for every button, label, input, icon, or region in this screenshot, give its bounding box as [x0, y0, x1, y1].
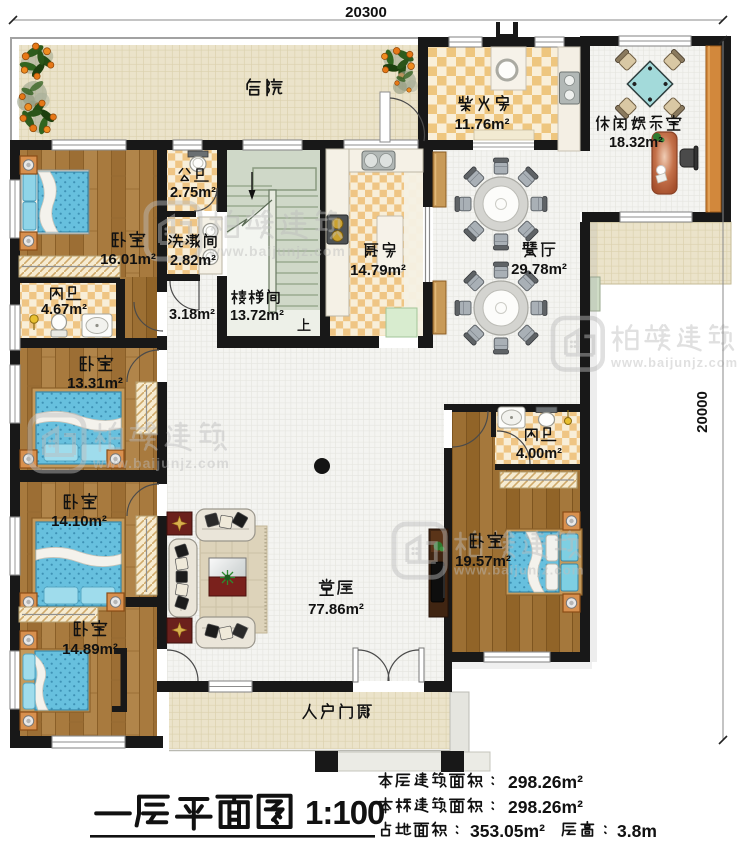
svg-text:4.67m²: 4.67m²: [41, 302, 87, 318]
svg-text:19.57m²: 19.57m²: [455, 553, 511, 570]
svg-text:18.32m²: 18.32m²: [609, 135, 663, 151]
svg-text:2.75m²: 2.75m²: [170, 185, 216, 201]
svg-text:77.86m²: 77.86m²: [308, 601, 364, 618]
svg-text:353.05m²: 353.05m²: [470, 821, 545, 841]
svg-text:3.18m²: 3.18m²: [169, 307, 215, 323]
svg-text:298.26m²: 298.26m²: [508, 797, 583, 817]
svg-text:16.01m²: 16.01m²: [100, 251, 156, 268]
svg-text:www.baijunjz.com: www.baijunjz.com: [610, 355, 738, 370]
svg-text:4.00m²: 4.00m²: [516, 446, 562, 462]
svg-text:13.31m²: 13.31m²: [67, 375, 123, 392]
svg-text:20300: 20300: [345, 4, 387, 21]
svg-text:www.baijunjz.com: www.baijunjz.com: [92, 455, 230, 471]
svg-text:20000: 20000: [694, 391, 711, 433]
svg-text:14.10m²: 14.10m²: [51, 513, 107, 530]
svg-text:29.78m²: 29.78m²: [511, 261, 567, 278]
svg-text:298.26m²: 298.26m²: [508, 772, 583, 792]
svg-text:www.baijunjz.com: www.baijunjz.com: [208, 243, 346, 259]
svg-text:1:100: 1:100: [305, 794, 384, 831]
svg-text:14.89m²: 14.89m²: [62, 641, 118, 658]
svg-text:13.72m²: 13.72m²: [230, 308, 284, 324]
svg-text:14.79m²: 14.79m²: [350, 262, 406, 279]
svg-text:11.76m²: 11.76m²: [454, 116, 509, 133]
svg-text:3.8m: 3.8m: [617, 821, 657, 841]
svg-text:2.82m²: 2.82m²: [170, 253, 216, 269]
